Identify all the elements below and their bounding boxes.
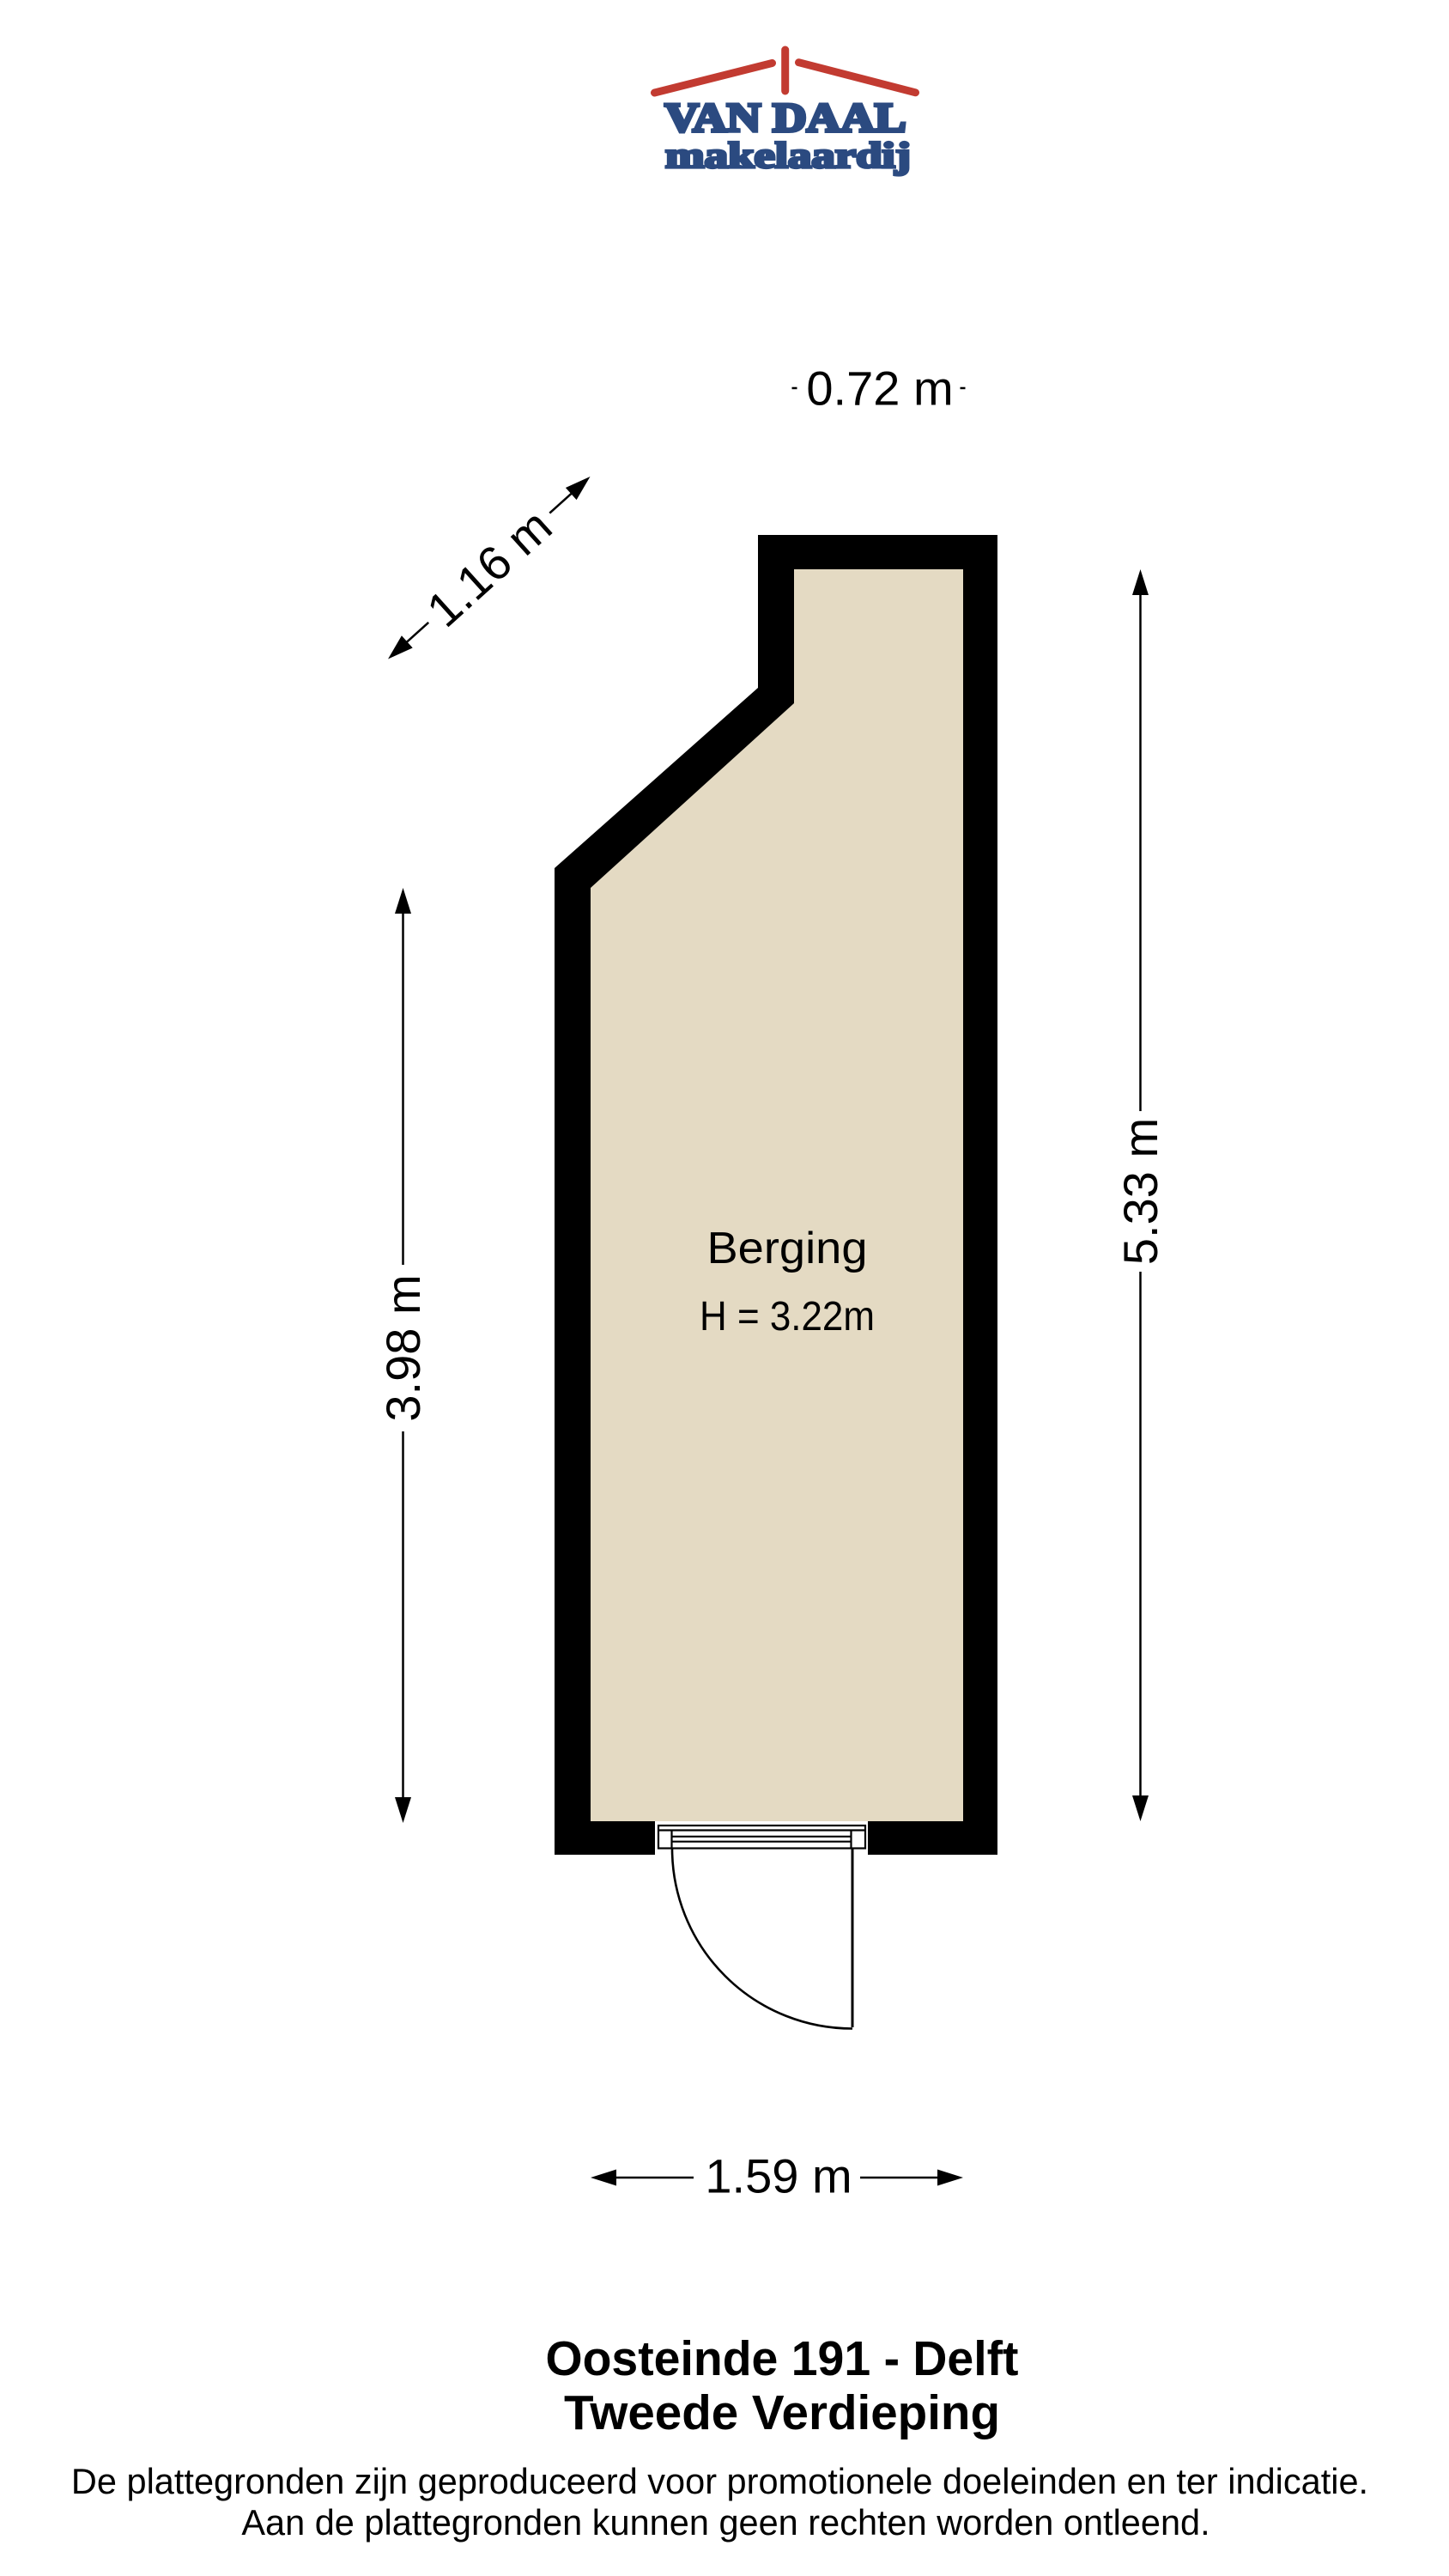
svg-text:VAN DAAL: VAN DAAL: [665, 95, 906, 141]
svg-text:De plattegronden zijn geproduc: De plattegronden zijn geproduceerd voor …: [71, 2461, 1368, 2501]
svg-text:makelaardij: makelaardij: [665, 137, 911, 176]
svg-text:1.59 m: 1.59 m: [705, 2149, 852, 2203]
svg-text:Aan de plattegronden kunnen ge: Aan de plattegronden kunnen geen rechten…: [241, 2502, 1210, 2543]
svg-text:Oosteinde 191 - Delft: Oosteinde 191 - Delft: [546, 2331, 1019, 2386]
svg-text:Tweede Verdieping: Tweede Verdieping: [564, 2385, 1000, 2440]
svg-text:1.16 m: 1.16 m: [416, 499, 561, 637]
svg-text:3.98 m: 3.98 m: [376, 1274, 430, 1421]
svg-text:5.33 m: 5.33 m: [1113, 1118, 1167, 1265]
svg-text:H = 3.22m: H = 3.22m: [700, 1294, 875, 1340]
svg-text:0.72 m: 0.72 m: [806, 361, 953, 416]
svg-text:Berging: Berging: [707, 1224, 868, 1273]
